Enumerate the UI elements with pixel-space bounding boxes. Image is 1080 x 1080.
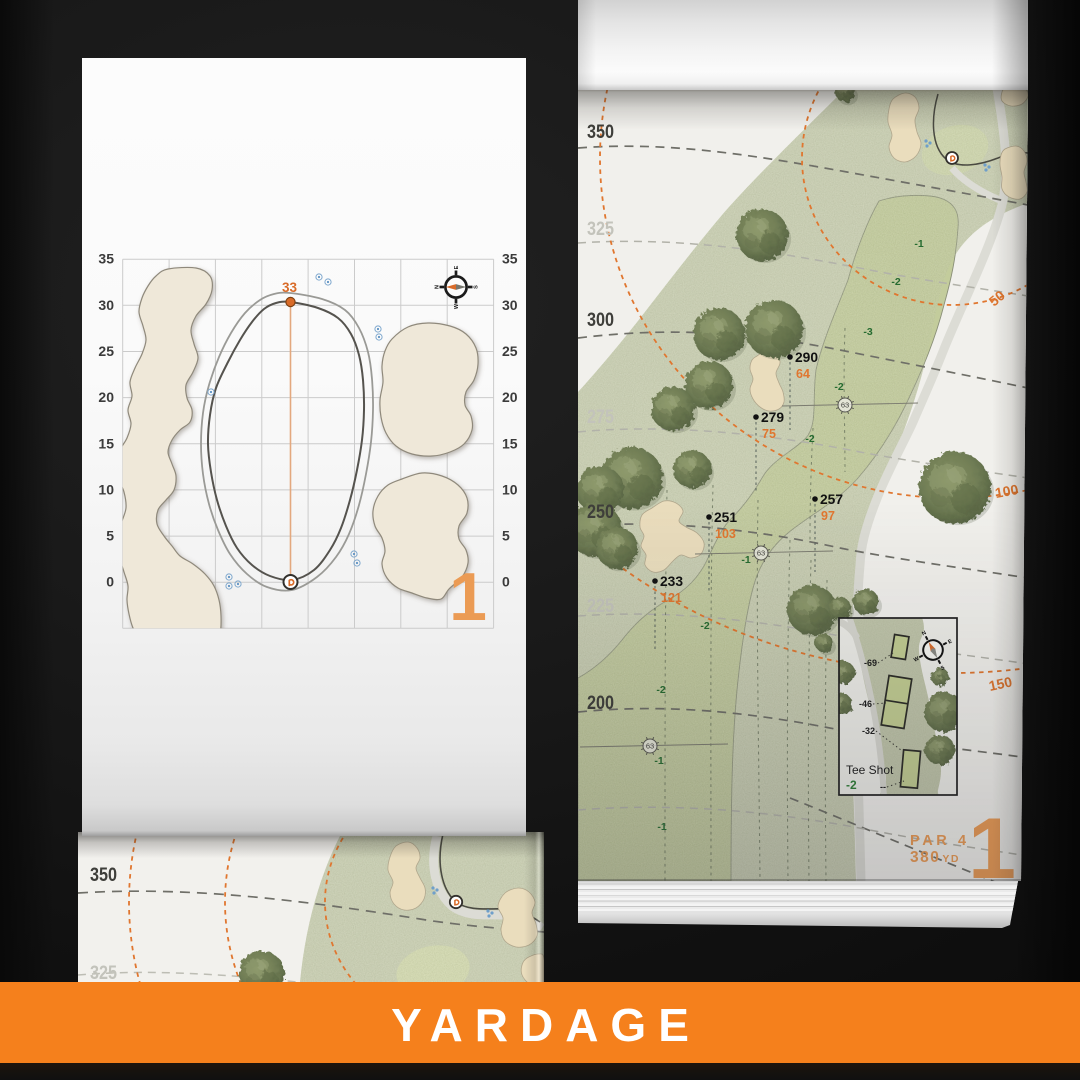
svg-text:33: 33 — [282, 280, 298, 295]
svg-text:W: W — [454, 303, 460, 309]
svg-text:30: 30 — [98, 297, 114, 313]
svg-text:N: N — [435, 285, 441, 289]
svg-text:20: 20 — [502, 389, 518, 405]
svg-text:1: 1 — [449, 559, 487, 635]
svg-text:25: 25 — [502, 343, 518, 359]
svg-text:15: 15 — [98, 435, 114, 451]
svg-text:S: S — [474, 285, 480, 289]
svg-text:5: 5 — [106, 528, 114, 544]
svg-text:325: 325 — [90, 962, 117, 982]
svg-text:35: 35 — [502, 251, 518, 267]
svg-text:0: 0 — [502, 574, 510, 590]
svg-text:35: 35 — [98, 251, 114, 267]
svg-text:20: 20 — [98, 389, 114, 405]
svg-text:30: 30 — [502, 297, 518, 313]
svg-text:E: E — [454, 265, 460, 269]
svg-text:10: 10 — [98, 481, 114, 497]
svg-text:350: 350 — [90, 864, 117, 886]
svg-text:5: 5 — [502, 528, 510, 544]
svg-text:25: 25 — [98, 343, 114, 359]
svg-text:0: 0 — [106, 574, 114, 590]
svg-text:15: 15 — [502, 435, 518, 451]
svg-text:10: 10 — [502, 481, 518, 497]
